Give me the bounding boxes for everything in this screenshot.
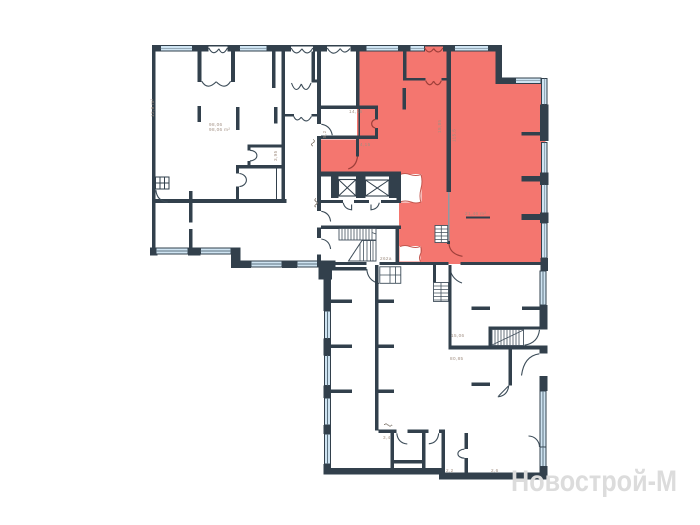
svg-text:262a: 262a — [380, 256, 392, 261]
svg-text:12,9 m²: 12,9 m² — [150, 99, 155, 117]
svg-text:3,95: 3,95 — [273, 150, 278, 161]
svg-text:115,5: 115,5 — [452, 129, 457, 142]
svg-text:2,6: 2,6 — [491, 468, 499, 473]
svg-text:4,15: 4,15 — [360, 142, 371, 147]
svg-text:2,2: 2,2 — [446, 468, 454, 473]
svg-text:14,15: 14,15 — [349, 109, 363, 114]
svg-text:15,06: 15,06 — [451, 333, 465, 338]
svg-text:21,46 m²: 21,46 m² — [465, 211, 486, 216]
svg-text:18,85: 18,85 — [437, 119, 442, 133]
svg-text:98,06 m²: 98,06 m² — [209, 127, 230, 132]
svg-text:3,4: 3,4 — [383, 435, 391, 440]
svg-text:80,85: 80,85 — [450, 356, 464, 361]
svg-text:5,2: 5,2 — [322, 130, 327, 138]
svg-text:Новострой-М: Новострой-М — [511, 465, 677, 498]
